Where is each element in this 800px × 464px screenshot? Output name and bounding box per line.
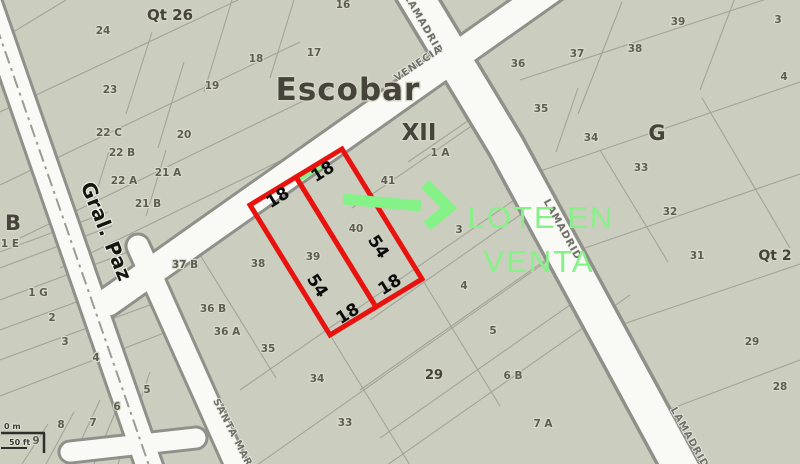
- parcel-label: 39: [671, 16, 686, 28]
- parcel-label: 36 B: [200, 303, 226, 315]
- parcel-label: 5: [489, 325, 496, 337]
- parcel-label: 6: [113, 401, 120, 413]
- parcel-label: 4: [92, 352, 99, 364]
- region-label-29: 29: [425, 368, 443, 383]
- parcel-label: 2: [48, 312, 55, 324]
- region-label-g: G: [648, 121, 665, 145]
- parcel-label: 36 A: [214, 326, 241, 338]
- parcel-label: 5: [143, 384, 150, 396]
- region-label-qt26: Qt 26: [147, 6, 193, 24]
- region-label-b: B: [5, 211, 21, 235]
- parcel-label: 8: [57, 419, 64, 431]
- parcel-label: 24: [96, 25, 111, 37]
- parcel-label: 20: [177, 129, 192, 141]
- parcel-label: 4: [780, 71, 787, 83]
- parcel-label: 7 A: [533, 418, 553, 430]
- parcel-label: 33: [634, 162, 649, 174]
- parcel-label: 3: [455, 224, 462, 236]
- parcel-label: 34: [584, 132, 599, 144]
- parcel-label: 21 A: [155, 167, 182, 179]
- parcel-label: 28: [773, 381, 788, 393]
- parcel-label: 22 A: [111, 175, 138, 187]
- parcel-label: 34: [310, 373, 325, 385]
- parcel-label: 18: [249, 53, 264, 65]
- parcel-label: 17: [307, 47, 322, 59]
- parcel-label: 29: [745, 336, 760, 348]
- parcel-label: 1 A: [430, 147, 450, 159]
- parcel-label: 37: [570, 48, 585, 60]
- parcel-label: 6 B: [504, 370, 523, 382]
- parcel-label: 3: [61, 336, 68, 348]
- parcel-label: 39: [306, 251, 321, 263]
- region-label-qt-right: Qt 2: [758, 248, 791, 264]
- sale-text-line1: LOTE EN: [468, 200, 615, 235]
- map-canvas[interactable]: Qt 26 Escobar XII G B 29 Qt 2 Gral. Paz …: [0, 0, 800, 464]
- parcel-label: 37 B: [172, 259, 198, 271]
- scale-metric-label: 0 m: [4, 422, 21, 431]
- sale-text-line2: VENTA: [483, 244, 594, 279]
- parcel-label: 22 C: [96, 127, 122, 139]
- parcel-label: 32: [663, 206, 678, 218]
- parcel-label: 35: [534, 103, 549, 115]
- parcel-label: 33: [338, 417, 353, 429]
- parcel-label: 1 E: [1, 238, 19, 250]
- parcel-label: 41: [381, 175, 396, 187]
- parcel-label: 35: [261, 343, 276, 355]
- map-screenshot: Qt 26 Escobar XII G B 29 Qt 2 Gral. Paz …: [0, 0, 800, 464]
- parcel-label: 21 B: [135, 198, 161, 210]
- parcel-label: 22 B: [109, 147, 135, 159]
- parcel-label: 16: [336, 0, 351, 11]
- parcel-label: 38: [628, 43, 643, 55]
- parcel-label: 40: [349, 223, 364, 235]
- section-label: XII: [402, 120, 437, 146]
- parcel-label: 1 G: [28, 287, 48, 299]
- parcel-label: 4: [460, 280, 467, 292]
- parcel-label: 9: [32, 435, 39, 447]
- scale-imperial-label: 50 ft: [9, 438, 30, 447]
- parcel-label: 31: [690, 250, 705, 262]
- parcel-label: 38: [251, 258, 266, 270]
- parcel-label: 19: [205, 80, 220, 92]
- parcel-label: 36: [511, 58, 526, 70]
- parcel-label: 3: [774, 14, 781, 26]
- parcel-label: 7: [89, 417, 96, 429]
- parcel-label: 23: [103, 84, 118, 96]
